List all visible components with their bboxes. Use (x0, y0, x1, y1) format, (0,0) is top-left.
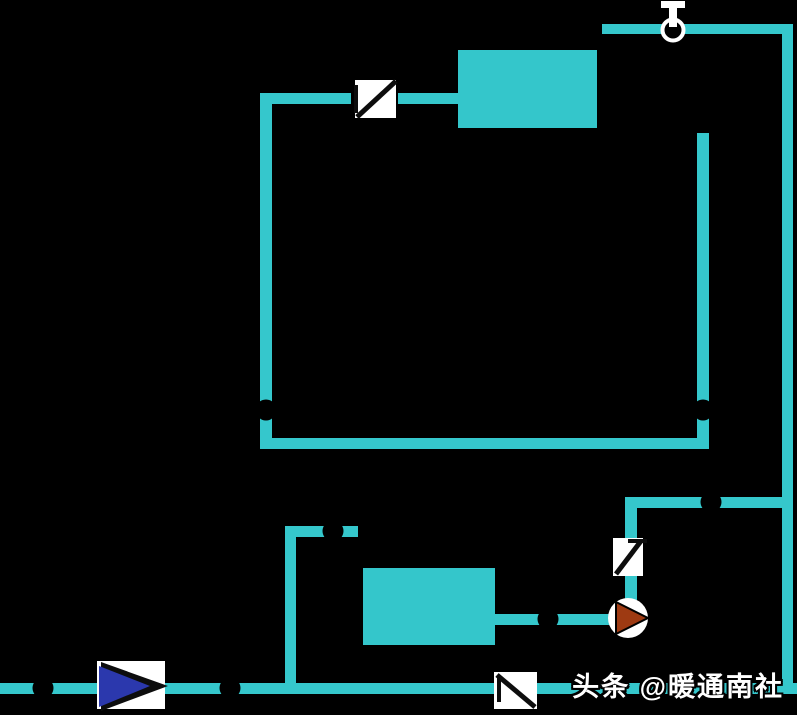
auto-air-vent-icon (661, 1, 685, 41)
check-valve-icon (494, 672, 537, 709)
directional-valve-icon (97, 661, 168, 711)
watermark-text: 头条 @暖通南社 (572, 665, 784, 704)
check-valve-icon (355, 80, 396, 118)
piping-diagram-canvas: 头条 @暖通南社 (0, 0, 797, 715)
symbols-overlay (0, 0, 797, 715)
pump-icon (608, 598, 648, 638)
check-valve-icon (613, 538, 647, 576)
